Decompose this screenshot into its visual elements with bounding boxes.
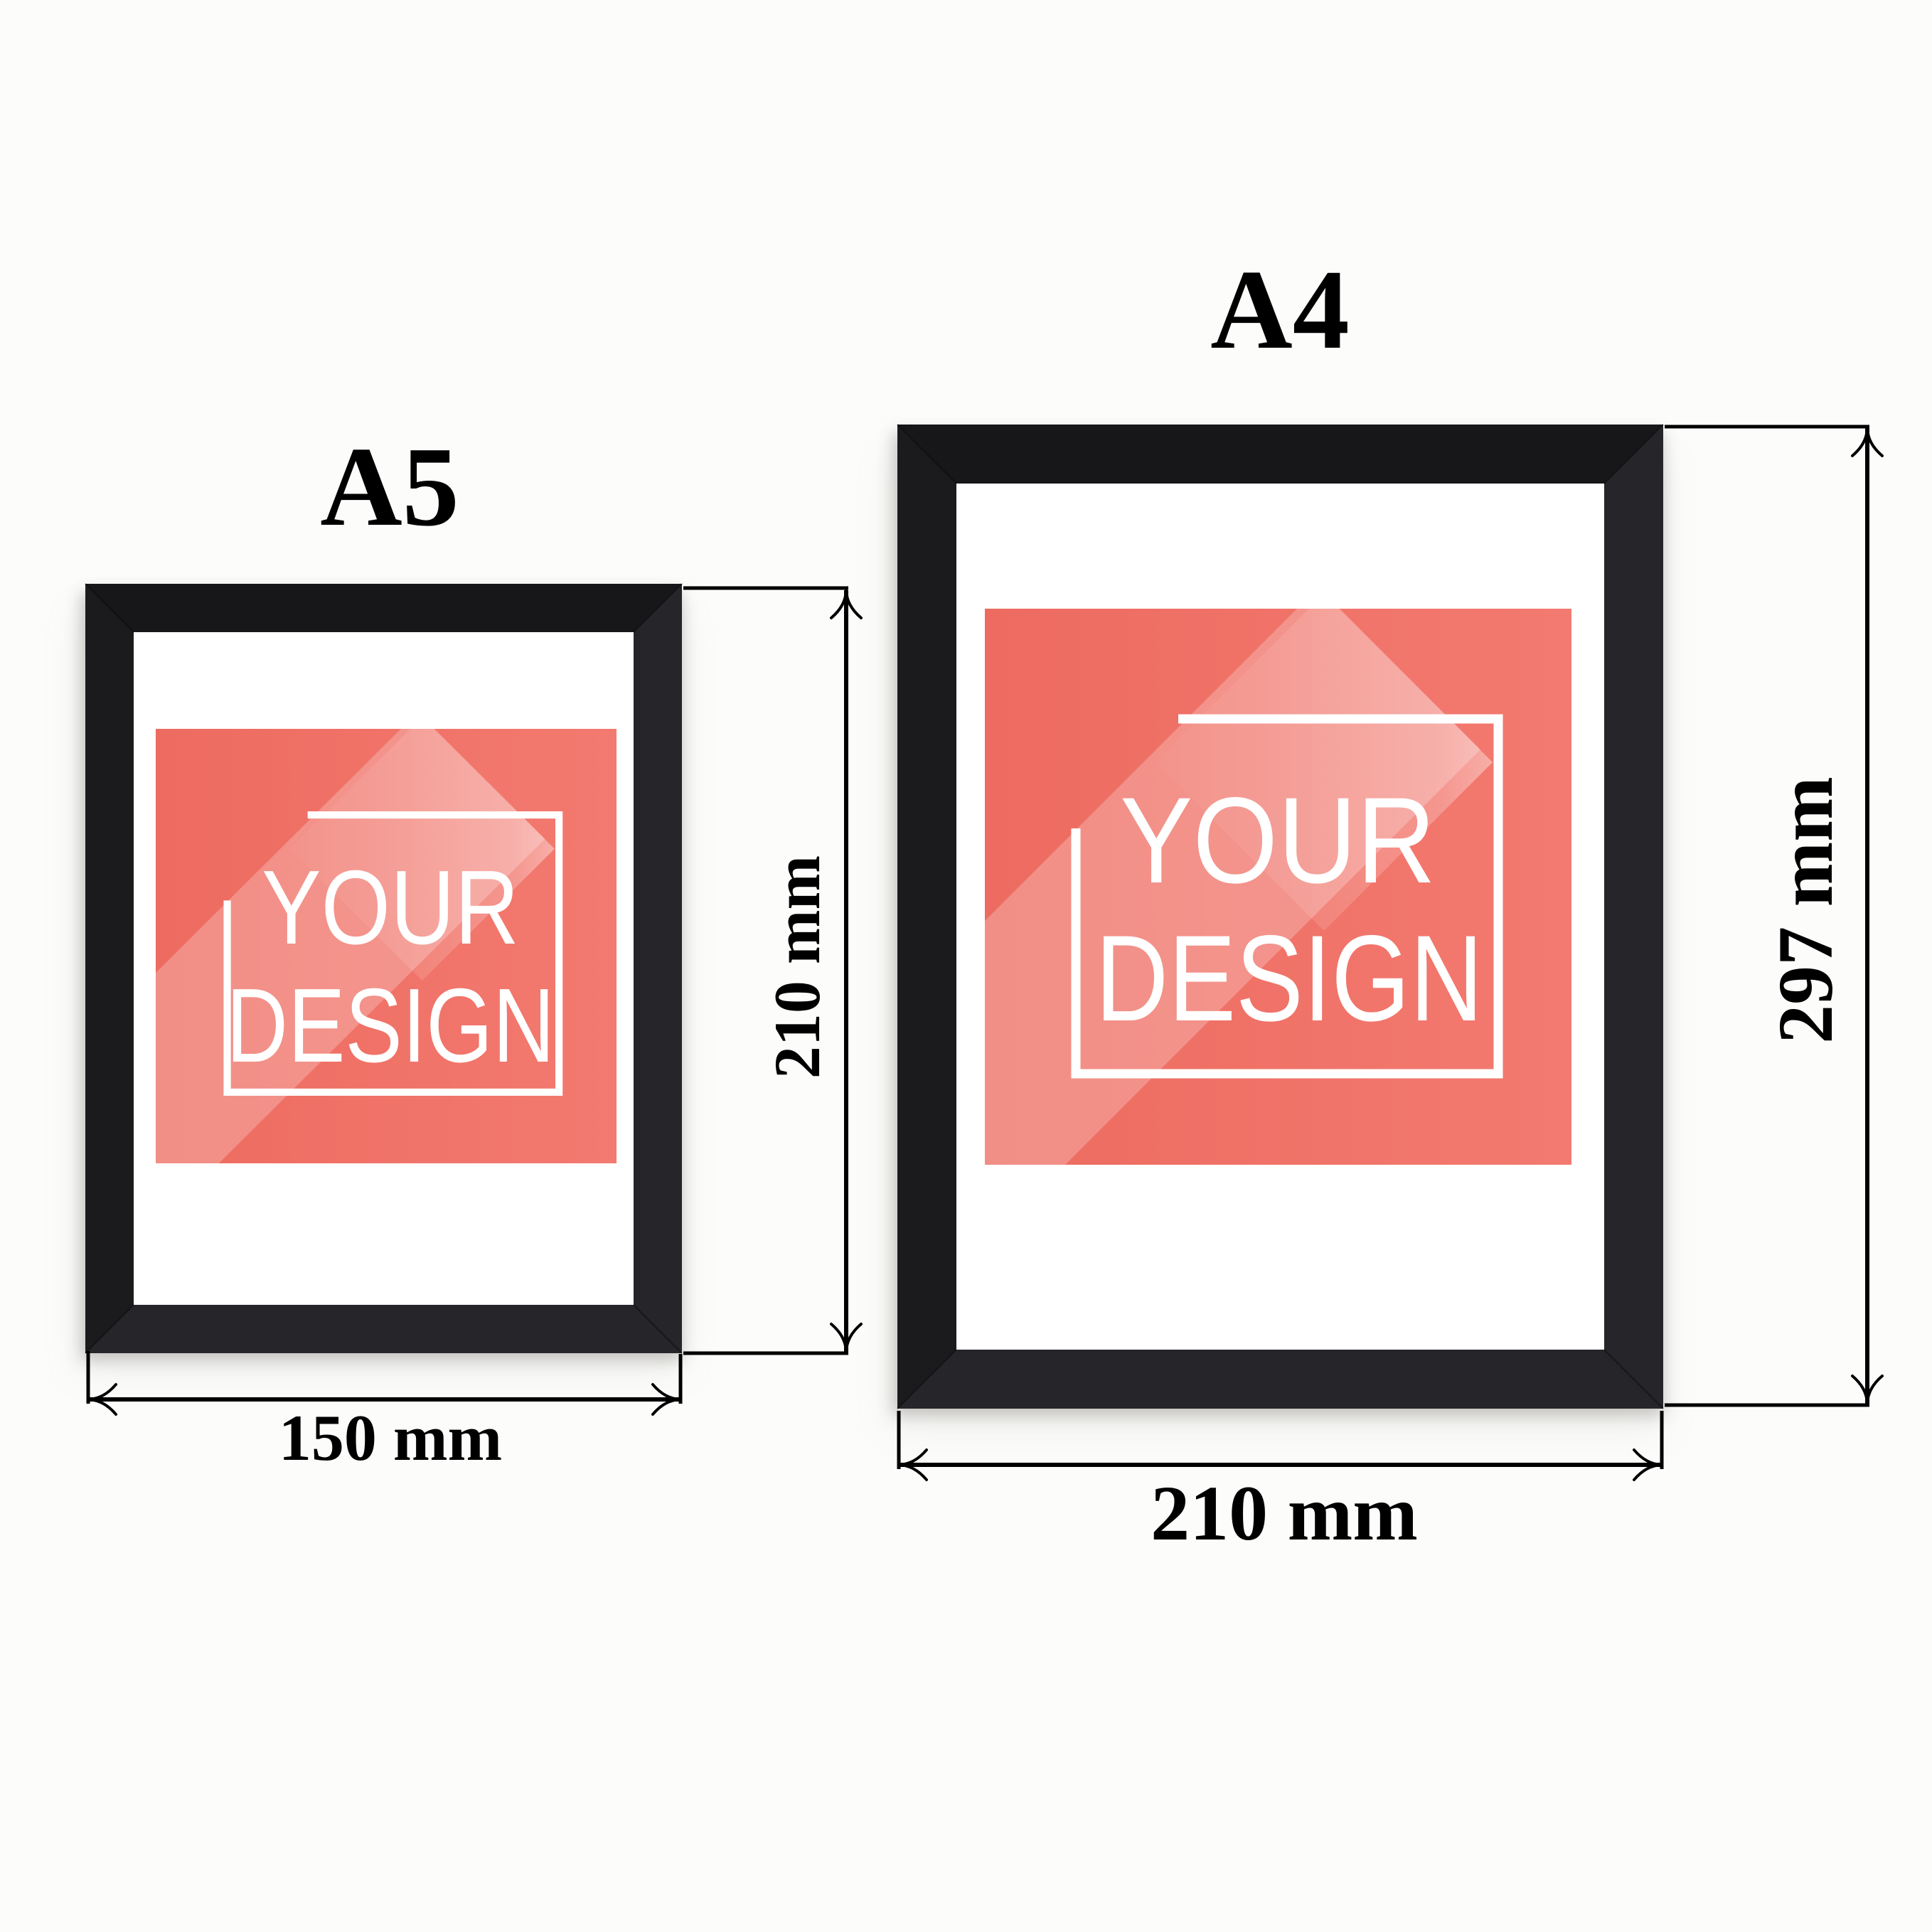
svg-text:DESIGN: DESIGN: [226, 967, 555, 1084]
svg-text:YOUR: YOUR: [262, 849, 519, 966]
svg-text:297 mm: 297 mm: [1762, 776, 1849, 1044]
svg-text:A4: A4: [1210, 246, 1350, 373]
svg-text:A5: A5: [320, 423, 459, 550]
svg-text:YOUR: YOUR: [1120, 772, 1436, 909]
svg-text:150 mm: 150 mm: [279, 1402, 502, 1474]
svg-text:210 mm: 210 mm: [761, 855, 833, 1079]
svg-text:DESIGN: DESIGN: [1096, 910, 1483, 1047]
svg-text:210 mm: 210 mm: [1151, 1470, 1418, 1557]
